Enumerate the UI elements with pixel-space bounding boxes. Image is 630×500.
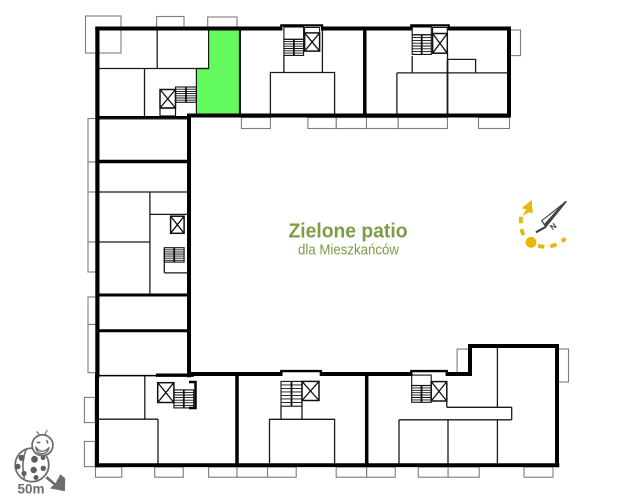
svg-text:dla Mieszkańców: dla Mieszkańców — [298, 242, 400, 258]
svg-text:50m: 50m — [18, 482, 45, 497]
svg-text:Zielone patio: Zielone patio — [289, 220, 408, 243]
